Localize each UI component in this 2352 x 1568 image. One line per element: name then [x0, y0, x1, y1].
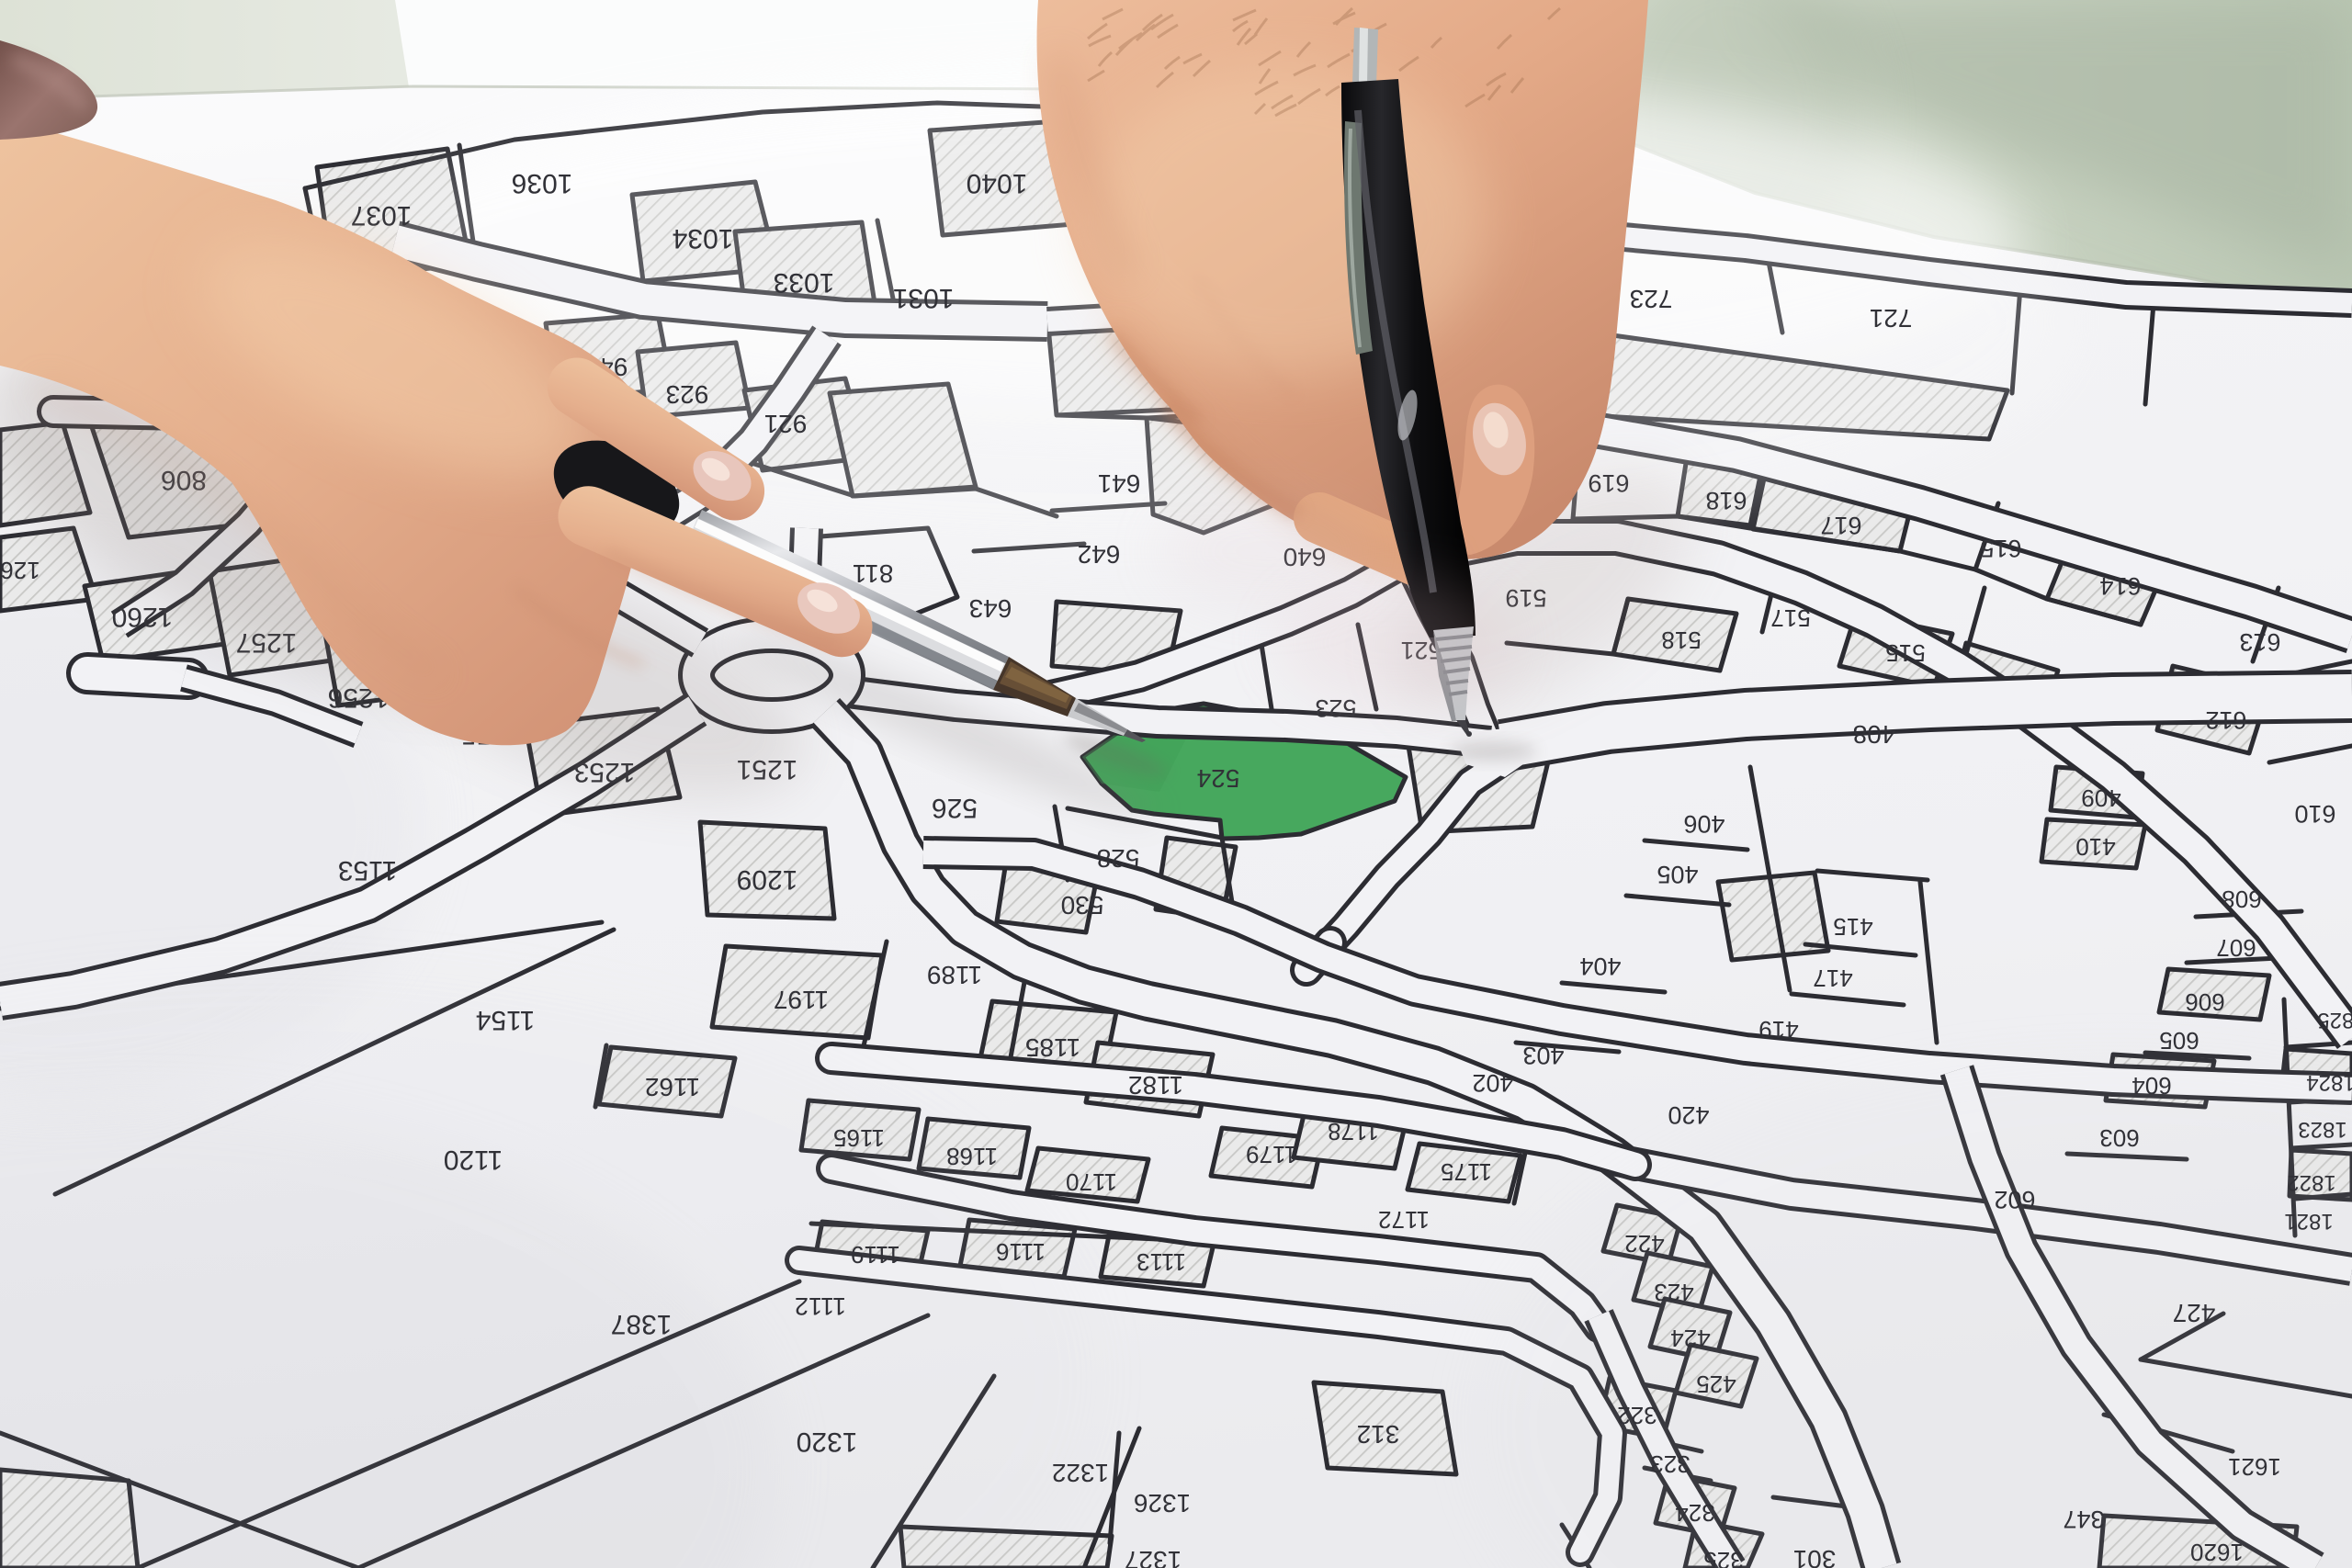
svg-text:325: 325: [1703, 1547, 1743, 1568]
svg-text:923: 923: [666, 380, 709, 409]
svg-text:617: 617: [1820, 512, 1861, 539]
svg-text:405: 405: [1657, 861, 1698, 888]
svg-text:1040: 1040: [967, 168, 1028, 198]
svg-text:423: 423: [1654, 1279, 1693, 1306]
svg-text:723: 723: [1630, 285, 1673, 313]
svg-text:1822: 1822: [2287, 1170, 2335, 1195]
svg-text:1327: 1327: [1125, 1546, 1182, 1568]
svg-text:1120: 1120: [444, 1145, 503, 1175]
svg-text:1322: 1322: [1052, 1459, 1109, 1487]
svg-text:322: 322: [1617, 1402, 1657, 1429]
svg-text:1182: 1182: [1128, 1071, 1183, 1100]
svg-text:641: 641: [1098, 469, 1141, 498]
svg-text:610: 610: [2294, 800, 2335, 828]
svg-text:419: 419: [1758, 1016, 1798, 1043]
svg-text:1113: 1113: [1136, 1248, 1186, 1276]
svg-text:410: 410: [2075, 833, 2115, 861]
svg-text:530: 530: [1061, 891, 1104, 919]
svg-text:1116: 1116: [996, 1238, 1046, 1266]
svg-text:420: 420: [1668, 1101, 1709, 1129]
svg-text:515: 515: [1885, 639, 1925, 667]
svg-text:409: 409: [2081, 784, 2120, 812]
svg-text:1154: 1154: [476, 1005, 536, 1035]
svg-text:1178: 1178: [1328, 1118, 1379, 1145]
svg-text:608: 608: [2222, 886, 2261, 913]
svg-text:526: 526: [932, 793, 978, 823]
svg-text:721: 721: [1870, 304, 1913, 333]
svg-text:1112: 1112: [795, 1292, 846, 1320]
svg-text:1119: 1119: [851, 1241, 900, 1269]
svg-text:1179: 1179: [1246, 1141, 1297, 1168]
svg-text:1821: 1821: [2284, 1209, 2333, 1234]
svg-text:427: 427: [2173, 1299, 2216, 1327]
svg-text:603: 603: [2099, 1124, 2139, 1152]
svg-text:1033: 1033: [774, 267, 835, 298]
svg-text:612: 612: [2205, 706, 2246, 734]
svg-text:528: 528: [1097, 844, 1140, 873]
svg-text:1189: 1189: [927, 961, 982, 989]
svg-text:1197: 1197: [774, 986, 829, 1014]
svg-text:422: 422: [1624, 1230, 1664, 1258]
svg-text:1031: 1031: [893, 283, 955, 313]
svg-text:614: 614: [2099, 572, 2141, 600]
svg-text:607: 607: [2216, 934, 2256, 962]
svg-text:323: 323: [1650, 1450, 1690, 1478]
svg-text:1209: 1209: [737, 864, 798, 895]
svg-text:618: 618: [1705, 487, 1747, 514]
svg-text:605: 605: [2159, 1027, 2199, 1055]
svg-text:1034: 1034: [673, 223, 734, 254]
svg-text:615: 615: [1980, 535, 2021, 562]
svg-text:1185: 1185: [1025, 1033, 1080, 1062]
svg-text:1037: 1037: [351, 200, 413, 231]
svg-text:301: 301: [1793, 1545, 1837, 1568]
svg-text:402: 402: [1472, 1069, 1513, 1097]
svg-text:1175: 1175: [1441, 1158, 1492, 1186]
svg-text:347: 347: [2063, 1506, 2104, 1533]
svg-text:1153: 1153: [338, 855, 398, 886]
svg-text:1260: 1260: [112, 602, 174, 632]
svg-text:1036: 1036: [512, 168, 573, 198]
svg-text:417: 417: [1813, 964, 1852, 992]
svg-text:518: 518: [1661, 626, 1701, 654]
svg-text:324: 324: [1675, 1499, 1714, 1527]
svg-text:406: 406: [1683, 810, 1724, 838]
svg-text:408: 408: [1853, 720, 1896, 749]
svg-text:1162: 1162: [645, 1073, 700, 1101]
svg-text:424: 424: [1670, 1325, 1710, 1352]
svg-text:1825: 1825: [2317, 1008, 2352, 1032]
svg-text:642: 642: [1078, 540, 1121, 569]
svg-text:403: 403: [1522, 1042, 1564, 1069]
svg-text:1620: 1620: [2190, 1539, 2244, 1566]
svg-text:312: 312: [1357, 1420, 1400, 1449]
svg-text:404: 404: [1579, 953, 1621, 980]
svg-text:425: 425: [1696, 1371, 1736, 1398]
svg-text:1387: 1387: [611, 1309, 673, 1339]
svg-text:604: 604: [2131, 1072, 2171, 1100]
svg-text:1621: 1621: [2228, 1453, 2281, 1481]
svg-text:921: 921: [764, 410, 808, 438]
svg-text:602: 602: [1994, 1186, 2035, 1213]
svg-text:415: 415: [1833, 913, 1872, 941]
svg-text:606: 606: [2185, 988, 2224, 1016]
svg-text:1824: 1824: [2306, 1070, 2352, 1095]
svg-text:613: 613: [2239, 628, 2280, 656]
svg-text:1320: 1320: [797, 1427, 858, 1457]
svg-text:1172: 1172: [1378, 1206, 1430, 1234]
svg-text:126: 126: [0, 557, 40, 584]
svg-text:524: 524: [1197, 764, 1240, 793]
svg-text:517: 517: [1770, 604, 1810, 632]
svg-text:643: 643: [969, 594, 1012, 623]
svg-text:1823: 1823: [2298, 1117, 2346, 1142]
svg-text:1165: 1165: [833, 1124, 885, 1152]
svg-text:1168: 1168: [946, 1143, 998, 1170]
svg-text:1326: 1326: [1134, 1489, 1191, 1517]
svg-text:1170: 1170: [1066, 1168, 1117, 1196]
